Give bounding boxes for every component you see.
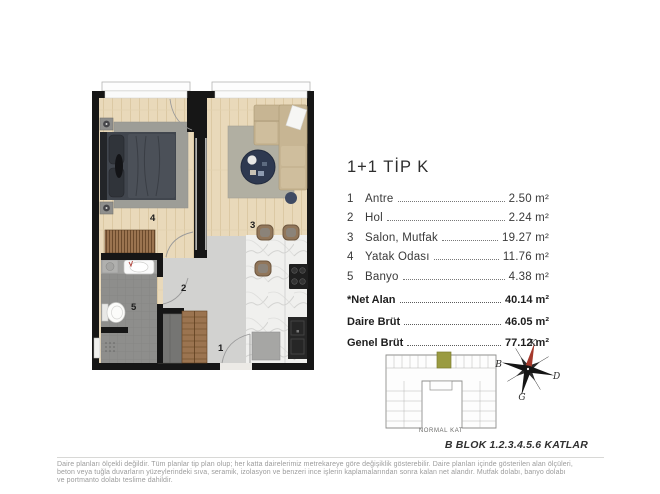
dot-leader [442,240,498,241]
compass-icon: K D G B [495,336,561,402]
dot-leader [387,220,505,221]
dot-leader [398,201,505,202]
room-list: 1 Antre 2.50 m² 2 Hol 2.24 m² 3 Salon, M… [347,185,549,283]
pouf [285,192,297,204]
disclaimer-line: beton veya tuğla duvarların yüzeylerinde… [57,469,604,477]
compass-east-label: D [552,372,560,382]
dot-leader [403,279,505,280]
block-floors-label: B BLOK 1.2.3.4.5.6 KATLAR [390,439,588,451]
room-label-1: 1 [218,343,224,354]
fridge-oven-column [288,317,307,359]
dot-leader [407,345,501,346]
disclaimer-line: Daire planları ölçekli değildir. Tüm pla… [57,461,604,469]
room-label-5: 5 [131,302,137,313]
unit-type-title: 1+1 TİP K [347,158,429,177]
entry-closets [158,308,207,363]
room-list-item: 4 Yatak Odası 11.76 m² [347,244,549,264]
bedroom-wardrobe [105,230,155,253]
bed [100,132,176,200]
room-list-item: 1 Antre 2.50 m² [347,185,549,205]
floor-plan-image: 1 2 3 4 5 [86,80,320,376]
highlighted-unit [437,352,451,368]
coffee-table [241,150,275,184]
compass-west-label: B [495,360,502,370]
disclaimer: Daire planları ölçekli değildir. Tüm pla… [57,457,604,485]
dot-leader [400,302,501,303]
room-list-item: 3 Salon, Mutfak 19.27 m² [347,224,549,244]
key-plan-image [384,351,498,429]
room-list-item: 5 Banyo 4.38 m² [347,263,549,283]
dot-leader [434,259,499,260]
top-window-frames [102,82,310,91]
entry-mat [252,332,280,360]
brochure-page: 1 2 3 4 5 1+1 TİP K 1 Antre 2.50 m² 2 Ho… [0,0,660,494]
room-label-3: 3 [250,220,255,231]
compass-south-label: G [518,393,525,402]
summary-row-net-alan: *Net Alan 40.14 m² [347,285,549,306]
dot-leader [404,324,501,325]
cooktop [289,264,308,289]
key-plan-caption: NORMAL KAT [384,428,498,434]
disclaimer-line: ve portmanto dolabı teslime dahildir. [57,477,604,485]
room-list-item: 2 Hol 2.24 m² [347,205,549,225]
room-label-2: 2 [181,283,186,294]
compass-north-label: K [529,339,538,349]
room-label-4: 4 [150,213,156,224]
summary-row-daire-brut: Daire Brüt 46.05 m² [347,306,549,327]
